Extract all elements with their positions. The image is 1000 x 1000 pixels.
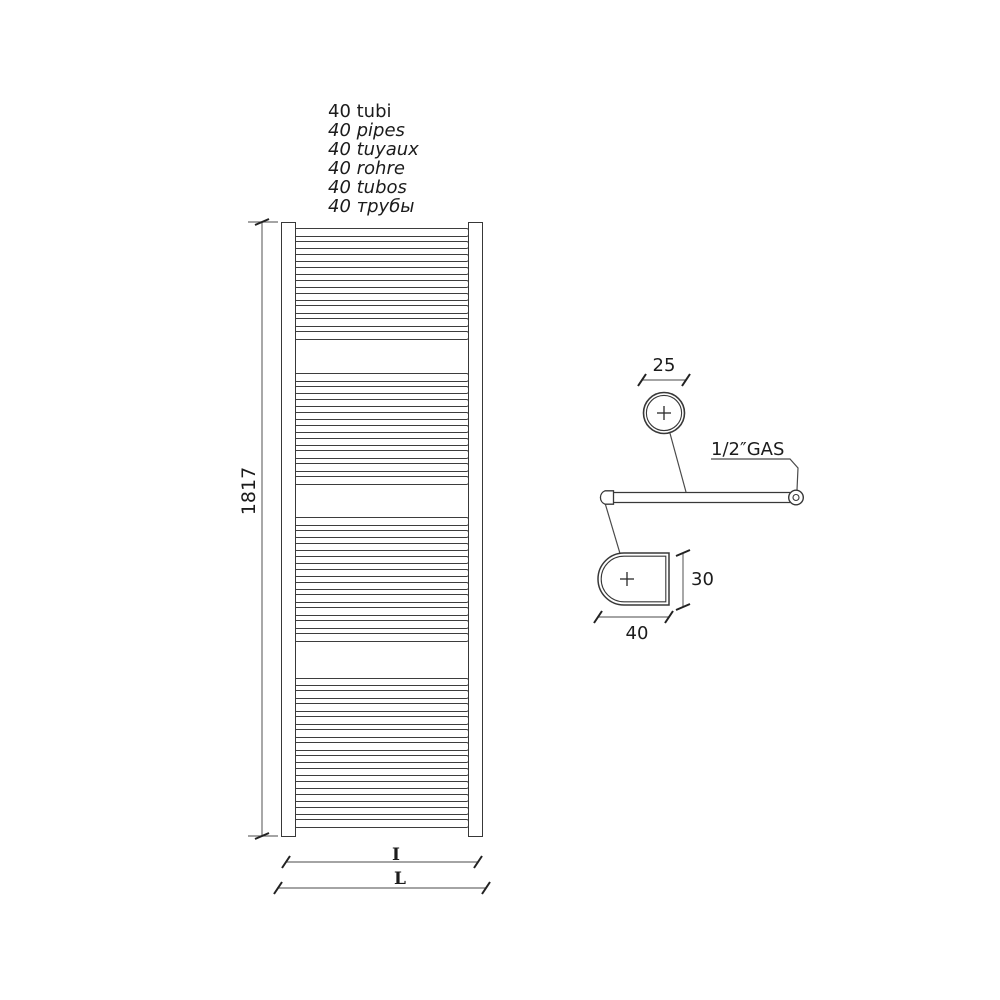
radiator-tube: [294, 241, 469, 250]
radiator-tube: [294, 556, 469, 565]
radiator-tube: [294, 305, 469, 314]
radiator-tube: [294, 476, 469, 485]
radiator-tube: [294, 228, 469, 237]
radiator-tube: [294, 607, 469, 616]
radiator-tube: [294, 373, 469, 382]
radiator-tube: [294, 293, 469, 302]
radiator-tube: [294, 267, 469, 276]
technical-drawing-canvas: 40 tubi 40 pipes 40 tuyaux 40 rohre 40 t…: [0, 0, 1000, 1000]
collector-depth-value: 30: [691, 569, 714, 590]
radiator-tube: [294, 781, 469, 790]
radiator-tube: [294, 729, 469, 738]
radiator-tube: [294, 716, 469, 725]
radiator-tube: [294, 318, 469, 327]
radiator-tube: [294, 543, 469, 552]
radiator-tube: [294, 425, 469, 434]
radiator-right-collector: [468, 222, 483, 837]
overall-width-label: L: [390, 869, 410, 889]
radiator-tube: [294, 819, 469, 828]
radiator-tube: [294, 280, 469, 289]
tube-diameter-value: 25: [643, 355, 685, 376]
radiator-tube: [294, 594, 469, 603]
connection-thread-label: 1/2″GAS: [711, 439, 784, 460]
radiator-tube: [294, 742, 469, 751]
radiator-tube: [294, 703, 469, 712]
overall-height-value: 1817: [238, 461, 260, 521]
interaxis-label: I: [386, 845, 406, 865]
radiator-tube: [294, 386, 469, 395]
collector-width-value: 40: [612, 623, 662, 644]
radiator-tube: [294, 582, 469, 591]
radiator-tube: [294, 254, 469, 263]
radiator-tube: [294, 438, 469, 447]
radiator-tube: [294, 620, 469, 629]
radiator-left-collector: [281, 222, 296, 837]
radiator-tube: [294, 633, 469, 642]
radiator-tube: [294, 569, 469, 578]
radiator-tube: [294, 463, 469, 472]
radiator-tube: [294, 530, 469, 539]
radiator-tubes: [0, 0, 1000, 1000]
radiator-tube: [294, 450, 469, 459]
radiator-tube: [294, 399, 469, 408]
radiator-tube: [294, 690, 469, 699]
radiator-tube: [294, 517, 469, 526]
radiator-tube: [294, 755, 469, 764]
radiator-tube: [294, 331, 469, 340]
radiator-tube: [294, 794, 469, 803]
radiator-tube: [294, 768, 469, 777]
radiator-tube: [294, 678, 469, 687]
radiator-tube: [294, 412, 469, 421]
radiator-tube: [294, 807, 469, 816]
